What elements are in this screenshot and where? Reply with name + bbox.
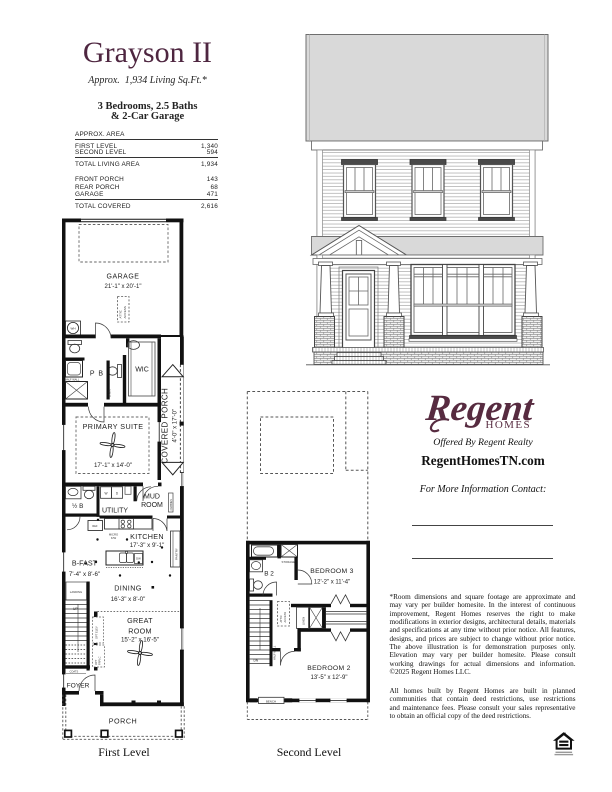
svg-text:17'-1" x 14'-0": 17'-1" x 14'-0" [94, 462, 132, 469]
svg-text:HALF WALL: HALF WALL [65, 378, 80, 382]
svg-text:DN: DN [254, 659, 259, 663]
svg-text:STORAGE: STORAGE [282, 560, 296, 564]
svg-text:OPT ELEV: OPT ELEV [95, 626, 99, 639]
svg-text:FRPLC: FRPLC [98, 656, 102, 665]
svg-text:12'-2" x 11'-4": 12'-2" x 11'-4" [314, 580, 350, 586]
svg-text:UTILITY: UTILITY [102, 508, 128, 515]
svg-text:LINEN: LINEN [108, 389, 112, 397]
svg-text:MUD: MUD [144, 494, 160, 501]
svg-text:7'-4" x 8'-6": 7'-4" x 8'-6" [69, 571, 100, 578]
svg-text:COATS: COATS [70, 669, 79, 673]
svg-text:K/W: K/W [111, 536, 117, 540]
svg-text:WH: WH [71, 327, 76, 331]
svg-text:DINING: DINING [114, 584, 142, 593]
svg-text:LINEN: LINEN [302, 617, 306, 625]
svg-text:DW: DW [136, 557, 141, 561]
svg-text:HALF WALL: HALF WALL [273, 645, 277, 660]
svg-text:B-FAST: B-FAST [72, 559, 98, 568]
svg-text:PRIMARY SUITE: PRIMARY SUITE [83, 422, 144, 431]
svg-text:W: W [104, 492, 107, 496]
svg-text:21'-1" x 20'-1": 21'-1" x 20'-1" [105, 284, 142, 290]
svg-text:ACCESS: ACCESS [283, 612, 287, 623]
svg-text:WIC: WIC [135, 367, 149, 374]
svg-text:BENCH: BENCH [266, 699, 276, 703]
svg-text:FOYER: FOYER [67, 683, 90, 690]
svg-text:ACCESS: ACCESS [123, 306, 127, 318]
svg-text:½ B: ½ B [72, 502, 83, 510]
svg-text:13'-5" x 12'-9": 13'-5" x 12'-9" [311, 675, 348, 681]
svg-text:ATTIC: ATTIC [279, 615, 283, 622]
svg-text:ATTIC: ATTIC [119, 309, 123, 318]
svg-text:BEDROOM 3: BEDROOM 3 [310, 568, 354, 575]
svg-text:16'-3" x 8'-0": 16'-3" x 8'-0" [111, 596, 146, 603]
svg-text:LANDING: LANDING [70, 590, 82, 594]
svg-text:BEDROOM 2: BEDROOM 2 [307, 665, 351, 672]
svg-text:ROOM: ROOM [128, 627, 152, 636]
svg-text:B 2: B 2 [264, 571, 274, 578]
svg-text:PORCH: PORCH [109, 717, 137, 726]
svg-text:PANTRY: PANTRY [175, 548, 179, 560]
svg-text:17'-3" x 9'-1": 17'-3" x 9'-1" [130, 542, 165, 549]
svg-text:HOMES: HOMES [485, 419, 531, 431]
svg-text:GREAT: GREAT [127, 616, 153, 625]
svg-text:GARAGE: GARAGE [107, 274, 140, 281]
svg-text:OPT: OPT [94, 659, 98, 665]
svg-text:4'-0" x 17'-0": 4'-0" x 17'-0" [172, 409, 178, 443]
svg-text:D: D [116, 492, 119, 496]
svg-text:UP: UP [73, 607, 78, 611]
svg-text:KITCHEN: KITCHEN [130, 532, 164, 541]
svg-text:P B: P B [90, 371, 104, 378]
svg-text:REF: REF [92, 524, 98, 528]
svg-text:CUBBIES: CUBBIES [169, 499, 173, 511]
svg-text:COVERED PORCH: COVERED PORCH [161, 388, 170, 464]
svg-text:ROOM: ROOM [141, 502, 163, 509]
